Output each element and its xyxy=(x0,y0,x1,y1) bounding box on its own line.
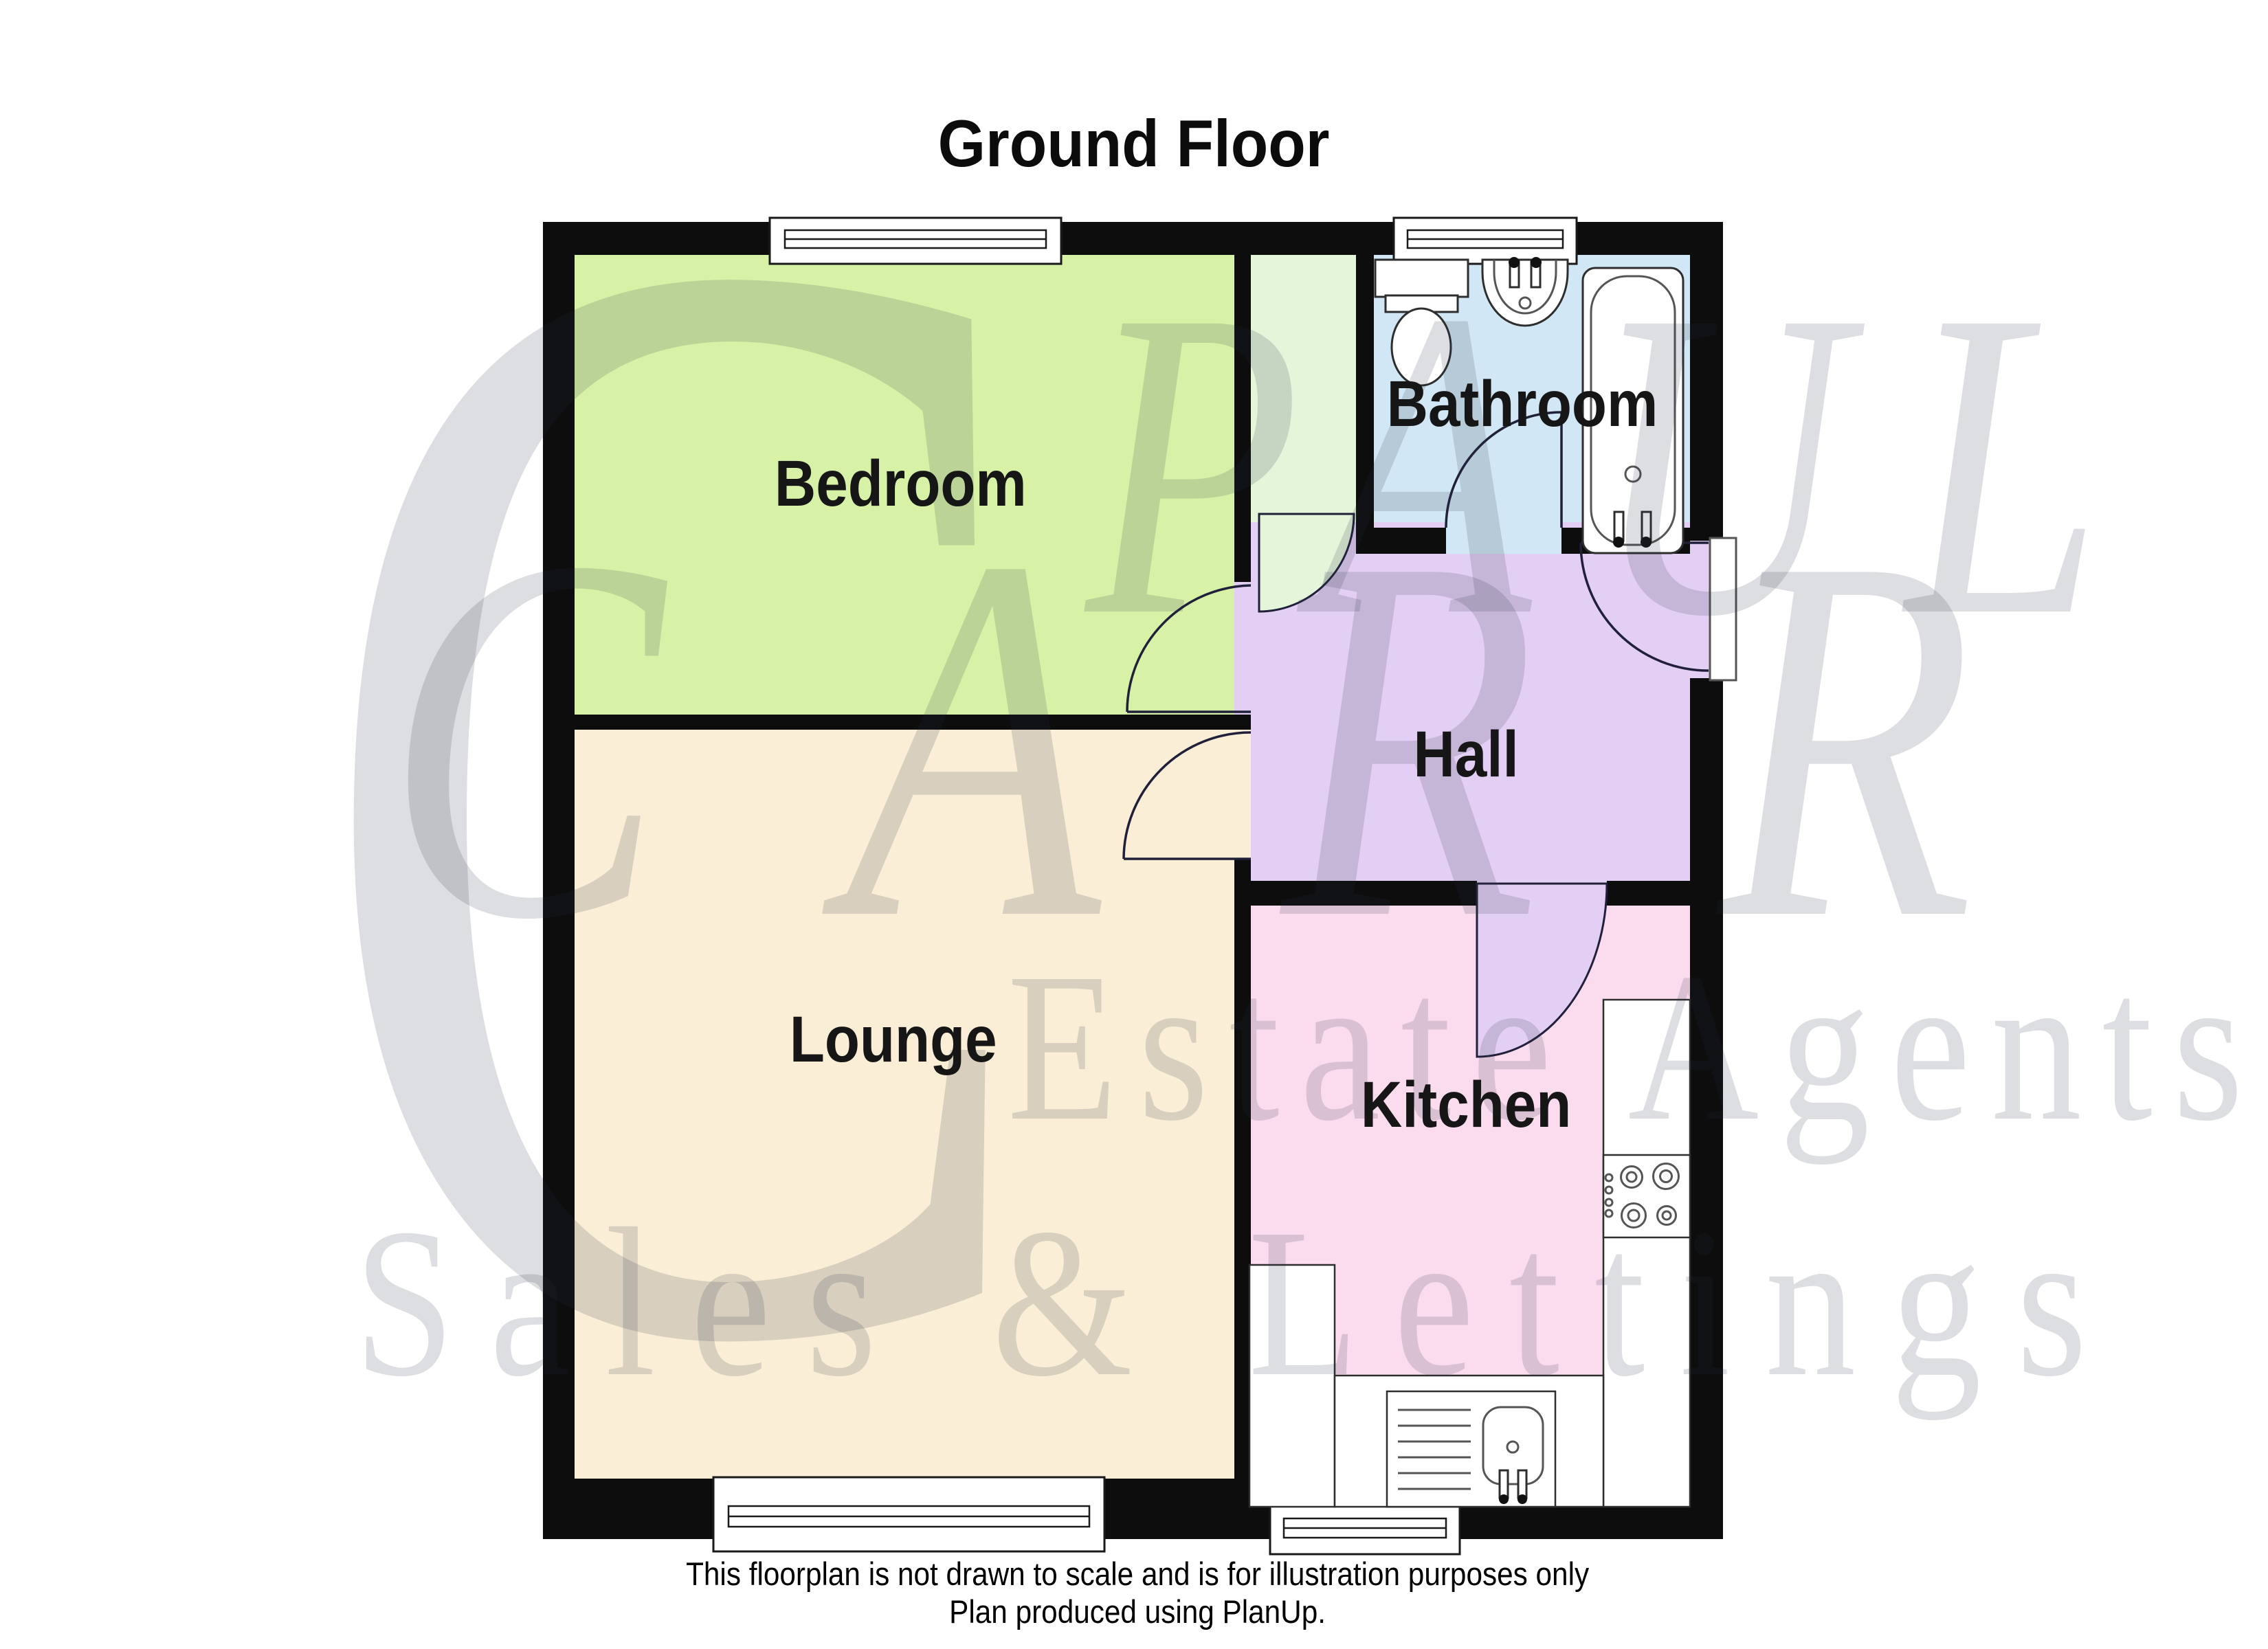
floorplan-page: Ground Floor xyxy=(0,0,2268,1649)
label-bedroom: Bedroom xyxy=(775,447,1027,519)
label-kitchen: Kitchen xyxy=(1361,1068,1572,1141)
watermark-sales-lettings: Sales & Lettings xyxy=(354,1185,2122,1421)
label-lounge: Lounge xyxy=(790,1002,997,1075)
floorplan-canvas: Ground Floor xyxy=(0,0,2268,1649)
watermark: C PAUL CARR Estate Agents Sales & Lettin… xyxy=(309,0,2264,1649)
disclaimer-line2: Plan produced using PlanUp. xyxy=(949,1595,1326,1630)
disclaimer-line1: This floorplan is not drawn to scale and… xyxy=(686,1557,1590,1593)
watermark-estate-agents: Estate Agents xyxy=(1007,930,2263,1165)
label-bathroom: Bathroom xyxy=(1387,367,1658,440)
label-hall: Hall xyxy=(1413,717,1518,790)
